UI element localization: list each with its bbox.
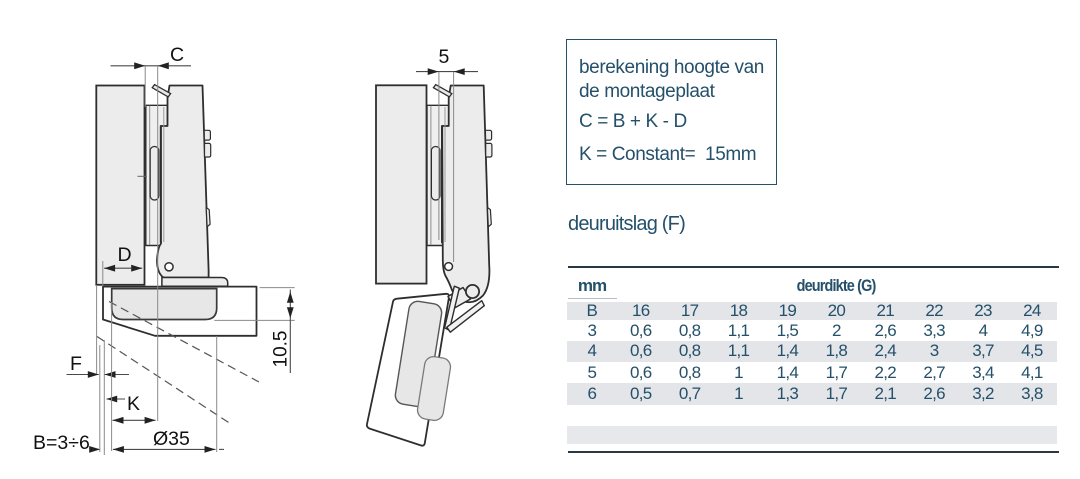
svg-text:D: D bbox=[118, 244, 132, 266]
svg-text:K: K bbox=[127, 393, 140, 415]
svg-text:5: 5 bbox=[439, 46, 450, 68]
svg-text:B=3÷6: B=3÷6 bbox=[33, 432, 90, 454]
svg-text:F: F bbox=[70, 353, 82, 375]
svg-text:10.5: 10.5 bbox=[271, 331, 292, 368]
svg-text:Ø35: Ø35 bbox=[153, 428, 190, 450]
svg-text:C: C bbox=[170, 44, 184, 66]
